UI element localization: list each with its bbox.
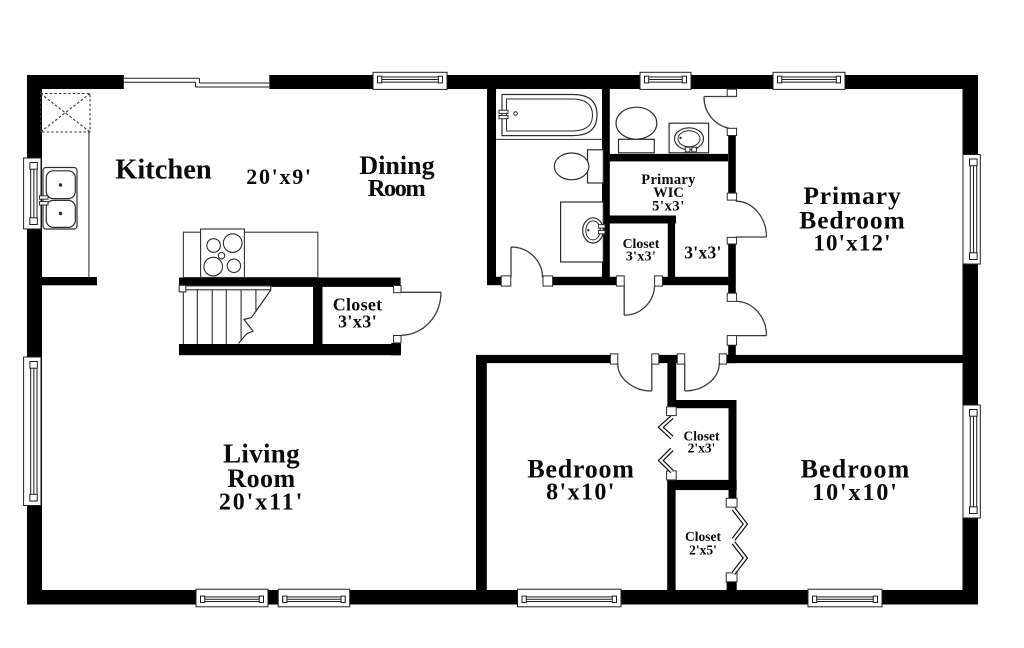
- svg-text:2'x5': 2'x5': [689, 542, 717, 557]
- svg-text:20'x9': 20'x9': [246, 164, 312, 189]
- svg-text:Kitchen: Kitchen: [115, 155, 212, 186]
- svg-text:8'x10': 8'x10': [546, 479, 616, 505]
- svg-text:3'x3': 3'x3': [338, 311, 377, 331]
- svg-text:Bedroom: Bedroom: [801, 454, 911, 483]
- svg-text:Room: Room: [368, 175, 426, 202]
- svg-text:20'x11': 20'x11': [219, 490, 304, 516]
- svg-text:10'x12': 10'x12': [813, 231, 891, 256]
- svg-text:2'x3': 2'x3': [688, 441, 716, 456]
- svg-text:3'x3': 3'x3': [684, 243, 721, 263]
- svg-text:3'x3': 3'x3': [626, 249, 656, 264]
- svg-text:10'x10': 10'x10': [812, 480, 899, 506]
- svg-text:5'x3': 5'x3': [652, 199, 685, 215]
